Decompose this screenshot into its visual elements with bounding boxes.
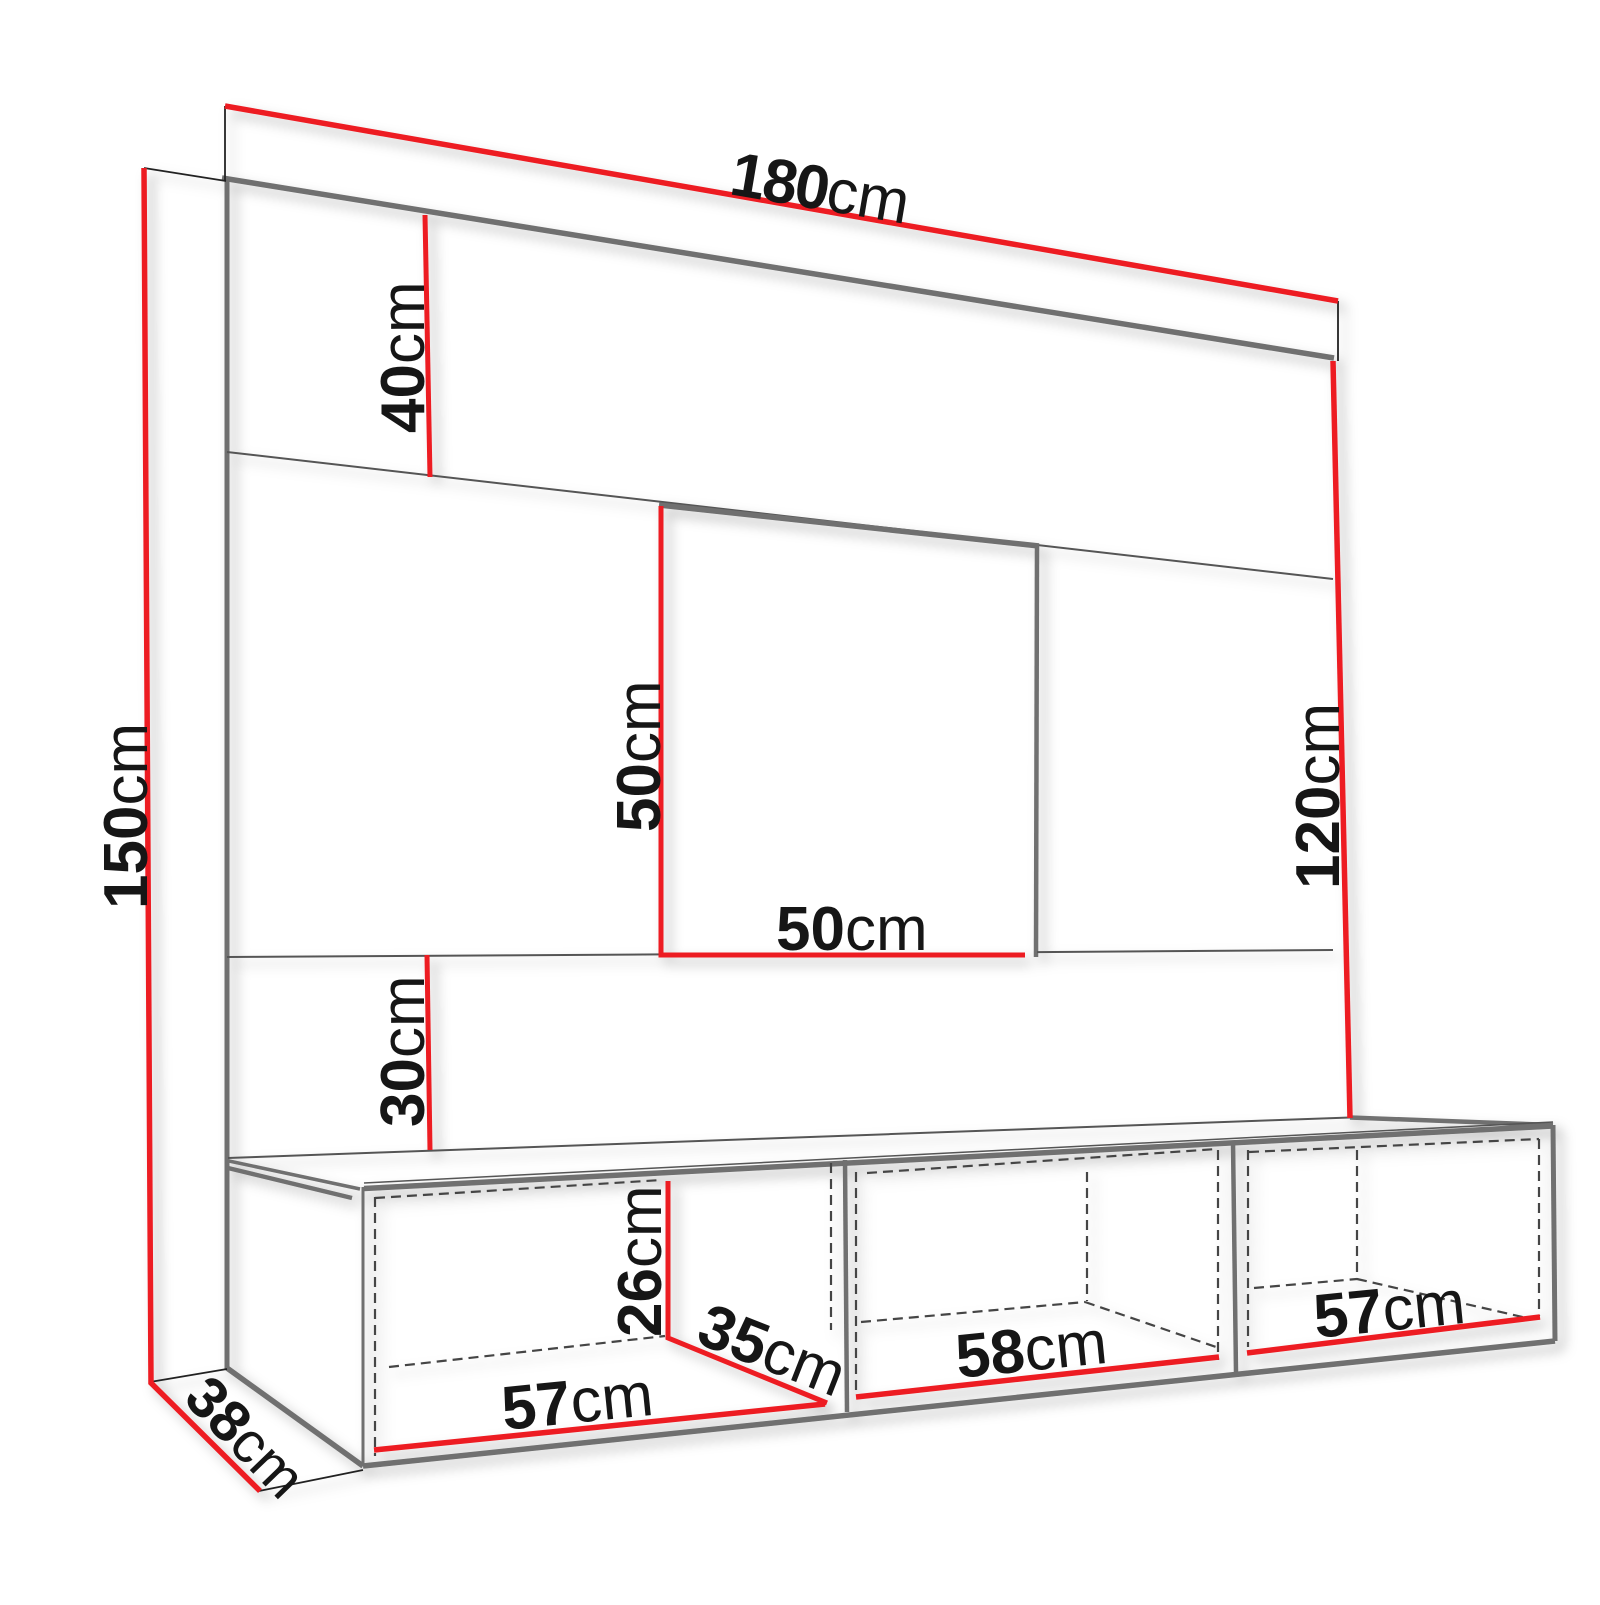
svg-text:50cm: 50cm [605, 680, 674, 832]
svg-text:50cm: 50cm [776, 895, 928, 964]
svg-text:30cm: 30cm [369, 975, 438, 1127]
svg-text:40cm: 40cm [369, 281, 438, 433]
svg-text:26cm: 26cm [606, 1185, 675, 1337]
svg-text:150cm: 150cm [92, 723, 161, 909]
svg-text:120cm: 120cm [1284, 703, 1353, 889]
